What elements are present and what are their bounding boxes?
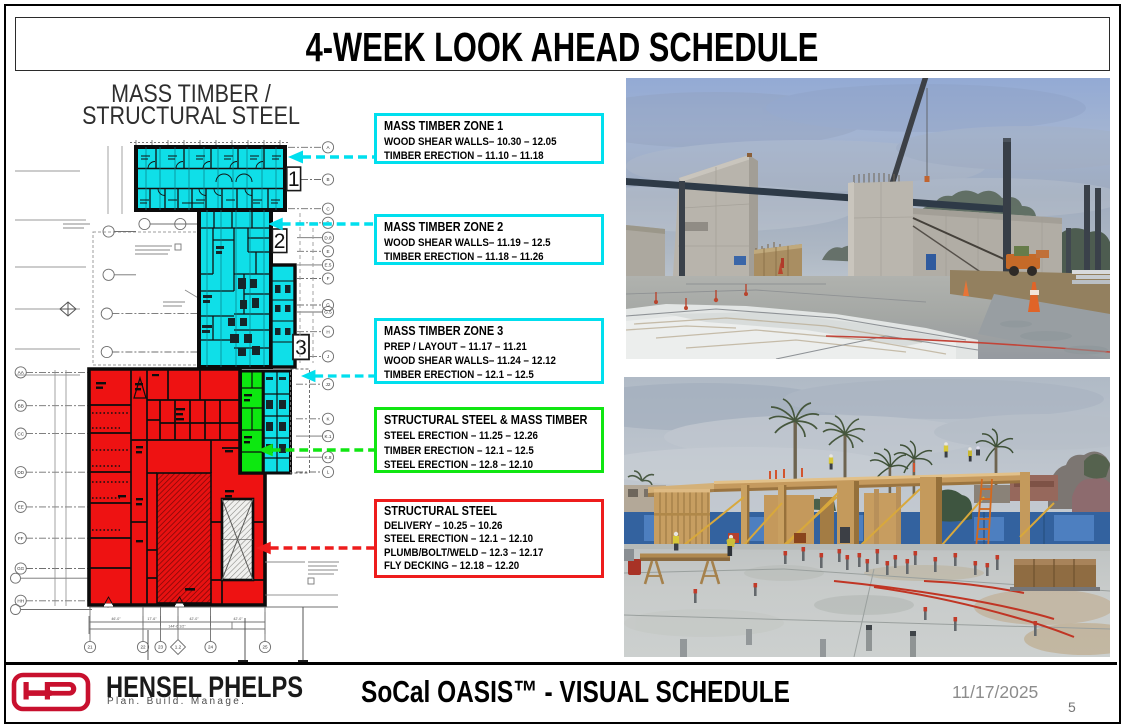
svg-text:B: B [326, 177, 329, 182]
svg-text:J: J [327, 354, 329, 359]
svg-text:E.5: E.5 [325, 263, 332, 268]
svg-text:GG: GG [17, 566, 25, 571]
svg-text:BB: BB [18, 403, 24, 408]
svg-text:2: 2 [274, 230, 286, 253]
svg-text:144'-6 1/2": 144'-6 1/2" [168, 625, 186, 629]
svg-text:HH: HH [17, 599, 24, 604]
svg-text:E: E [326, 249, 329, 254]
svg-text:23: 23 [158, 645, 164, 650]
svg-text:42'-0": 42'-0" [233, 617, 243, 621]
svg-text:25: 25 [262, 645, 268, 650]
svg-text:K: K [326, 417, 330, 422]
svg-text:3: 3 [295, 337, 307, 360]
svg-text:1.2: 1.2 [175, 645, 182, 650]
svg-text:17'-6": 17'-6" [147, 617, 157, 621]
svg-text:FF: FF [18, 536, 24, 541]
svg-text:K.1: K.1 [325, 434, 332, 439]
svg-text:EE: EE [18, 505, 24, 510]
svg-text:CC: CC [17, 431, 24, 436]
svg-text:42'-0": 42'-0" [189, 617, 199, 621]
svg-text:C: C [326, 206, 330, 211]
svg-text:1: 1 [288, 168, 300, 191]
svg-text:F: F [327, 276, 330, 281]
svg-text:L: L [327, 470, 330, 475]
svg-text:G.5: G.5 [324, 310, 332, 315]
svg-text:46'-0": 46'-0" [111, 617, 121, 621]
svg-text:D.8: D.8 [324, 235, 332, 240]
svg-text:AA: AA [18, 370, 25, 375]
svg-text:H: H [326, 329, 329, 334]
svg-text:22: 22 [140, 645, 146, 650]
svg-text:G: G [326, 303, 330, 308]
svg-text:DD: DD [17, 470, 24, 475]
svg-text:21: 21 [87, 645, 93, 650]
svg-text:24: 24 [208, 645, 214, 650]
